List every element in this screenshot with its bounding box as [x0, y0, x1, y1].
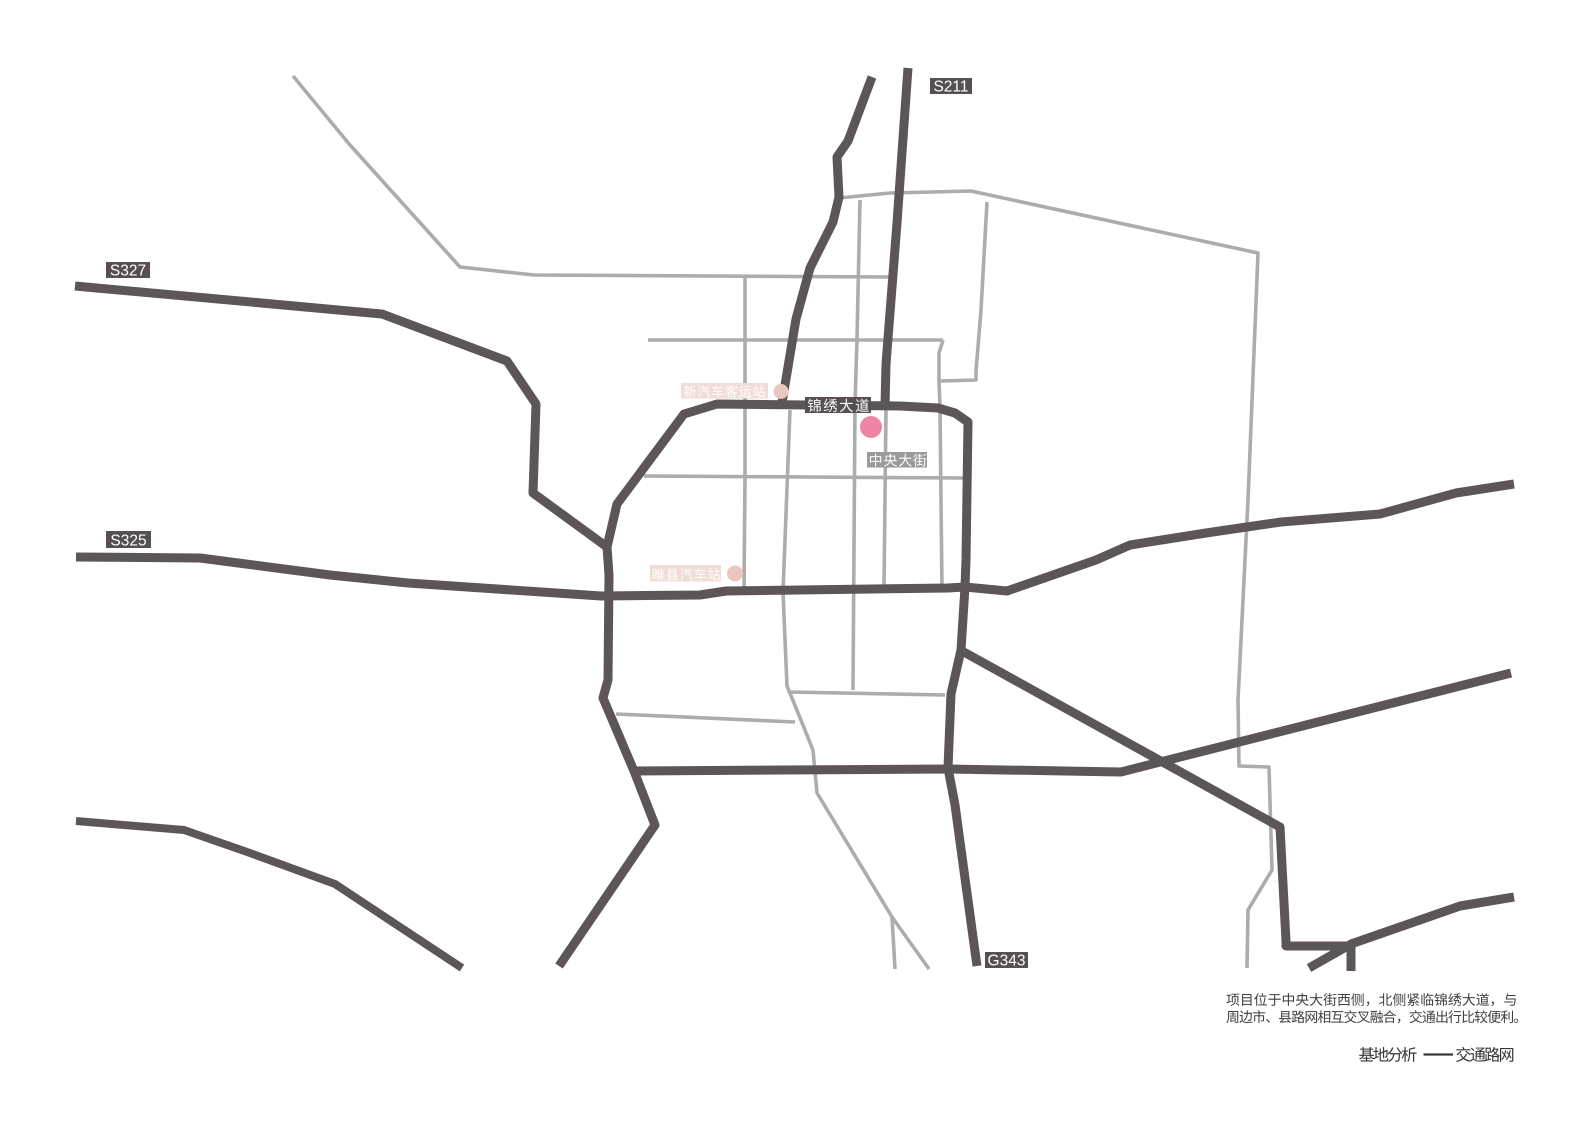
svg-text:S325: S325	[110, 533, 146, 550]
svg-text:S327: S327	[110, 263, 146, 280]
svg-text:S211: S211	[933, 79, 968, 96]
svg-text:G343: G343	[988, 953, 1026, 970]
